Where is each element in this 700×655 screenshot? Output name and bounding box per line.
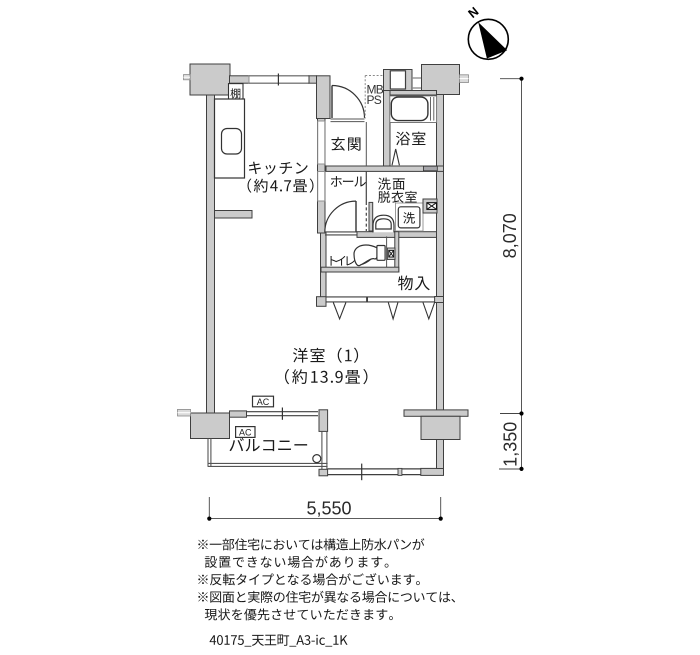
svg-text:AC: AC bbox=[257, 397, 270, 407]
svg-text:AC: AC bbox=[239, 427, 252, 437]
svg-text:1,350: 1,350 bbox=[501, 422, 521, 467]
svg-text:5,550: 5,550 bbox=[306, 499, 351, 519]
svg-text:8,070: 8,070 bbox=[500, 213, 520, 258]
